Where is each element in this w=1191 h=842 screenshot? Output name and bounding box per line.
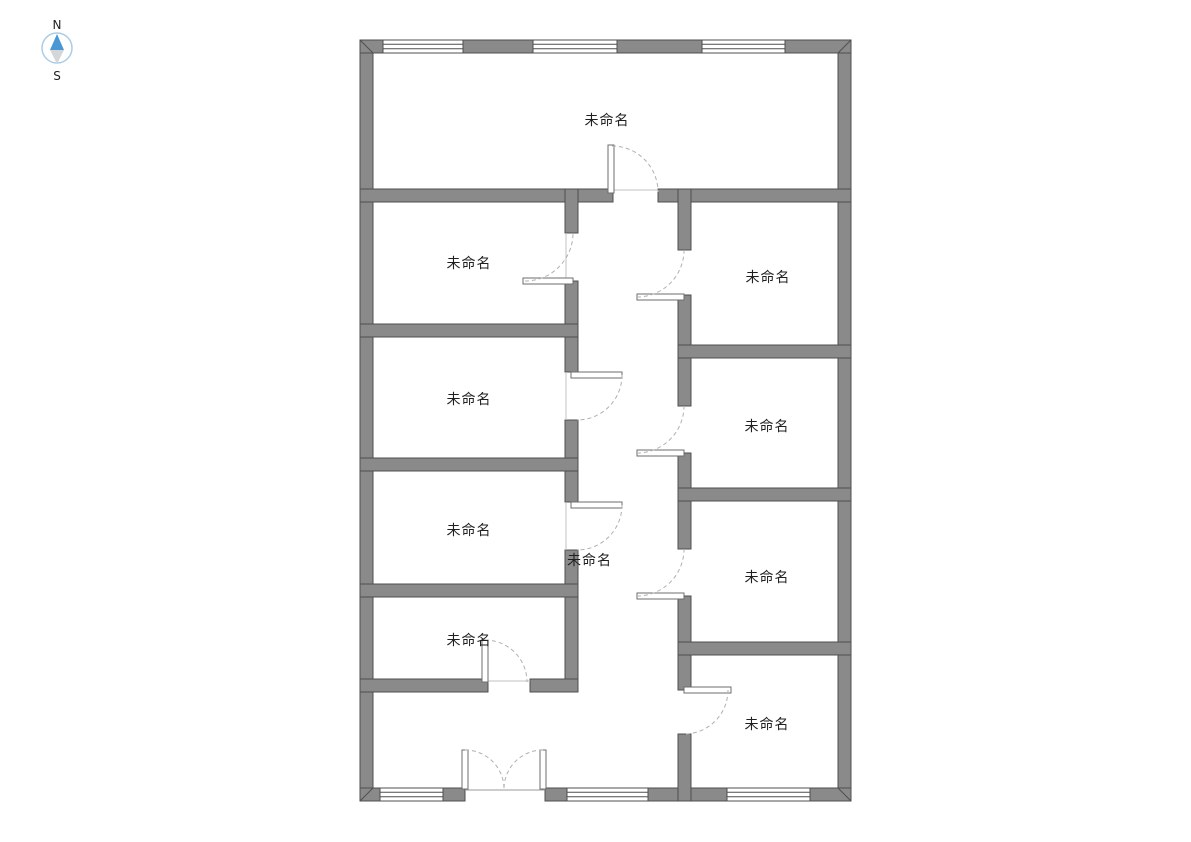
window[interactable] — [702, 40, 785, 53]
wall-segment — [360, 458, 578, 471]
compass: N S — [42, 18, 72, 83]
compass-north-label: N — [53, 18, 62, 32]
window[interactable] — [380, 788, 443, 801]
window-frame — [702, 40, 785, 53]
room-label-east-2[interactable]: 未命名 — [745, 418, 790, 435]
wall-segment — [678, 488, 851, 501]
wall-segment — [678, 642, 851, 655]
wall-segment — [785, 40, 851, 53]
door-room-east-4[interactable] — [684, 687, 731, 734]
door-leaf — [637, 450, 684, 456]
window-frame — [727, 788, 810, 801]
door-room-east-1[interactable] — [637, 250, 684, 300]
wall-segment — [360, 679, 488, 692]
door-room-east-3[interactable] — [637, 549, 684, 599]
room-label-west-1[interactable]: 未命名 — [447, 255, 492, 272]
door-leaf — [571, 502, 622, 508]
window-frame — [567, 788, 648, 801]
room-labels: 未命名 未命名 未命名 未命名 未命名 未命名 未命名 未命名 未命名 未命名 — [447, 112, 791, 733]
wall-segment — [678, 345, 851, 358]
door-leaf — [637, 593, 684, 599]
wall-segment — [565, 550, 578, 692]
window-frame — [380, 788, 443, 801]
wall-segment — [678, 189, 691, 250]
entry-double-door[interactable] — [462, 750, 546, 790]
room-label-east-4[interactable]: 未命名 — [745, 716, 790, 733]
wall-segment — [360, 324, 578, 337]
wall-segment — [443, 788, 465, 801]
room-label-hallway[interactable]: 未命名 — [567, 552, 612, 569]
door-room-east-2[interactable] — [637, 406, 684, 456]
room-label-east-1[interactable]: 未命名 — [746, 269, 791, 286]
wall-segment — [565, 189, 578, 233]
door-swing-arc — [637, 250, 684, 297]
door-leaf — [608, 145, 614, 193]
wall-segment — [617, 40, 702, 53]
room-label-north[interactable]: 未命名 — [585, 112, 630, 129]
wall-segment — [545, 788, 567, 801]
door-leaf — [462, 750, 468, 789]
room-label-west-4[interactable]: 未命名 — [447, 632, 492, 649]
door-leaf — [684, 687, 731, 693]
room-label-west-3[interactable]: 未命名 — [447, 522, 492, 539]
compass-south-label: S — [53, 69, 61, 83]
door-swing-arc — [612, 146, 658, 192]
window[interactable] — [383, 40, 463, 53]
wall-segment — [360, 584, 578, 597]
window[interactable] — [533, 40, 617, 53]
door-room-north[interactable] — [608, 145, 658, 193]
door-swing-arc — [684, 690, 728, 734]
door-room-west-2[interactable] — [566, 372, 622, 420]
floorplan-canvas: N S — [0, 0, 1191, 842]
wall-segment — [360, 788, 380, 801]
door-leaf — [637, 294, 684, 300]
door-leaf — [571, 372, 622, 378]
wall-segment — [463, 40, 533, 53]
wall-segment — [678, 734, 691, 801]
room-label-east-3[interactable]: 未命名 — [745, 569, 790, 586]
door-swing-arc — [577, 505, 622, 550]
window-frame — [383, 40, 463, 53]
door-room-west-3[interactable] — [566, 502, 622, 550]
window[interactable] — [727, 788, 810, 801]
window[interactable] — [567, 788, 648, 801]
door-swing-arc — [465, 750, 504, 789]
window-frame — [533, 40, 617, 53]
wall-segment — [838, 40, 851, 801]
door-leaf — [523, 278, 573, 284]
door-leaf — [540, 750, 546, 789]
door-swing-arc — [504, 750, 543, 789]
door-swing-arc — [577, 375, 622, 420]
door-swing-arc — [637, 549, 684, 596]
room-label-west-2[interactable]: 未命名 — [447, 391, 492, 408]
wall-segment — [530, 679, 578, 692]
door-room-west-1[interactable] — [523, 233, 573, 284]
door-swing-arc — [637, 406, 684, 453]
